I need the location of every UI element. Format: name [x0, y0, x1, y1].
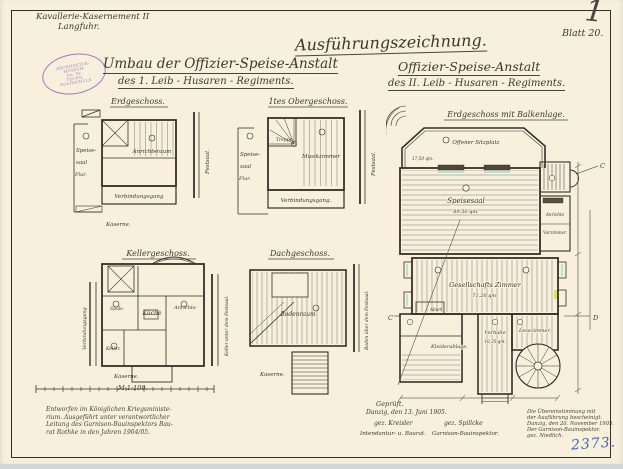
leader-line	[398, 220, 460, 385]
role-right: Garnison-Bauinspektor.	[432, 431, 499, 437]
design-note-line3: Leitung des Garnison-Bauinspektors Bau-	[46, 421, 173, 429]
archive-number: 2373.	[570, 434, 616, 453]
signature-left: gez. Kreisler	[374, 420, 413, 427]
overlay-marks	[0, 0, 623, 469]
role-left: Intendantur- u. Baurat.	[360, 431, 426, 437]
design-note-line2: rium. Ausgeführt unter verantwortlicher	[46, 414, 173, 422]
drawing-sheet: Kavallerie-Kasernement II Langfuhr. ARCH…	[0, 0, 623, 469]
scale-bar	[36, 385, 214, 393]
signature-right: gez. Spillcke	[444, 420, 483, 427]
design-note-line4: rat Rothke in den Jahren 1904/05.	[46, 429, 173, 437]
design-note-block: Entworfen im Königlichen Kriegsministe- …	[46, 406, 173, 436]
approval-date: Danzig, den 13. Juni 1905.	[366, 409, 447, 416]
approval-label: Geprüft.	[376, 400, 404, 408]
design-note-line1: Entworfen im Königlichen Kriegsministe-	[46, 406, 173, 414]
scan-edge	[0, 464, 623, 469]
